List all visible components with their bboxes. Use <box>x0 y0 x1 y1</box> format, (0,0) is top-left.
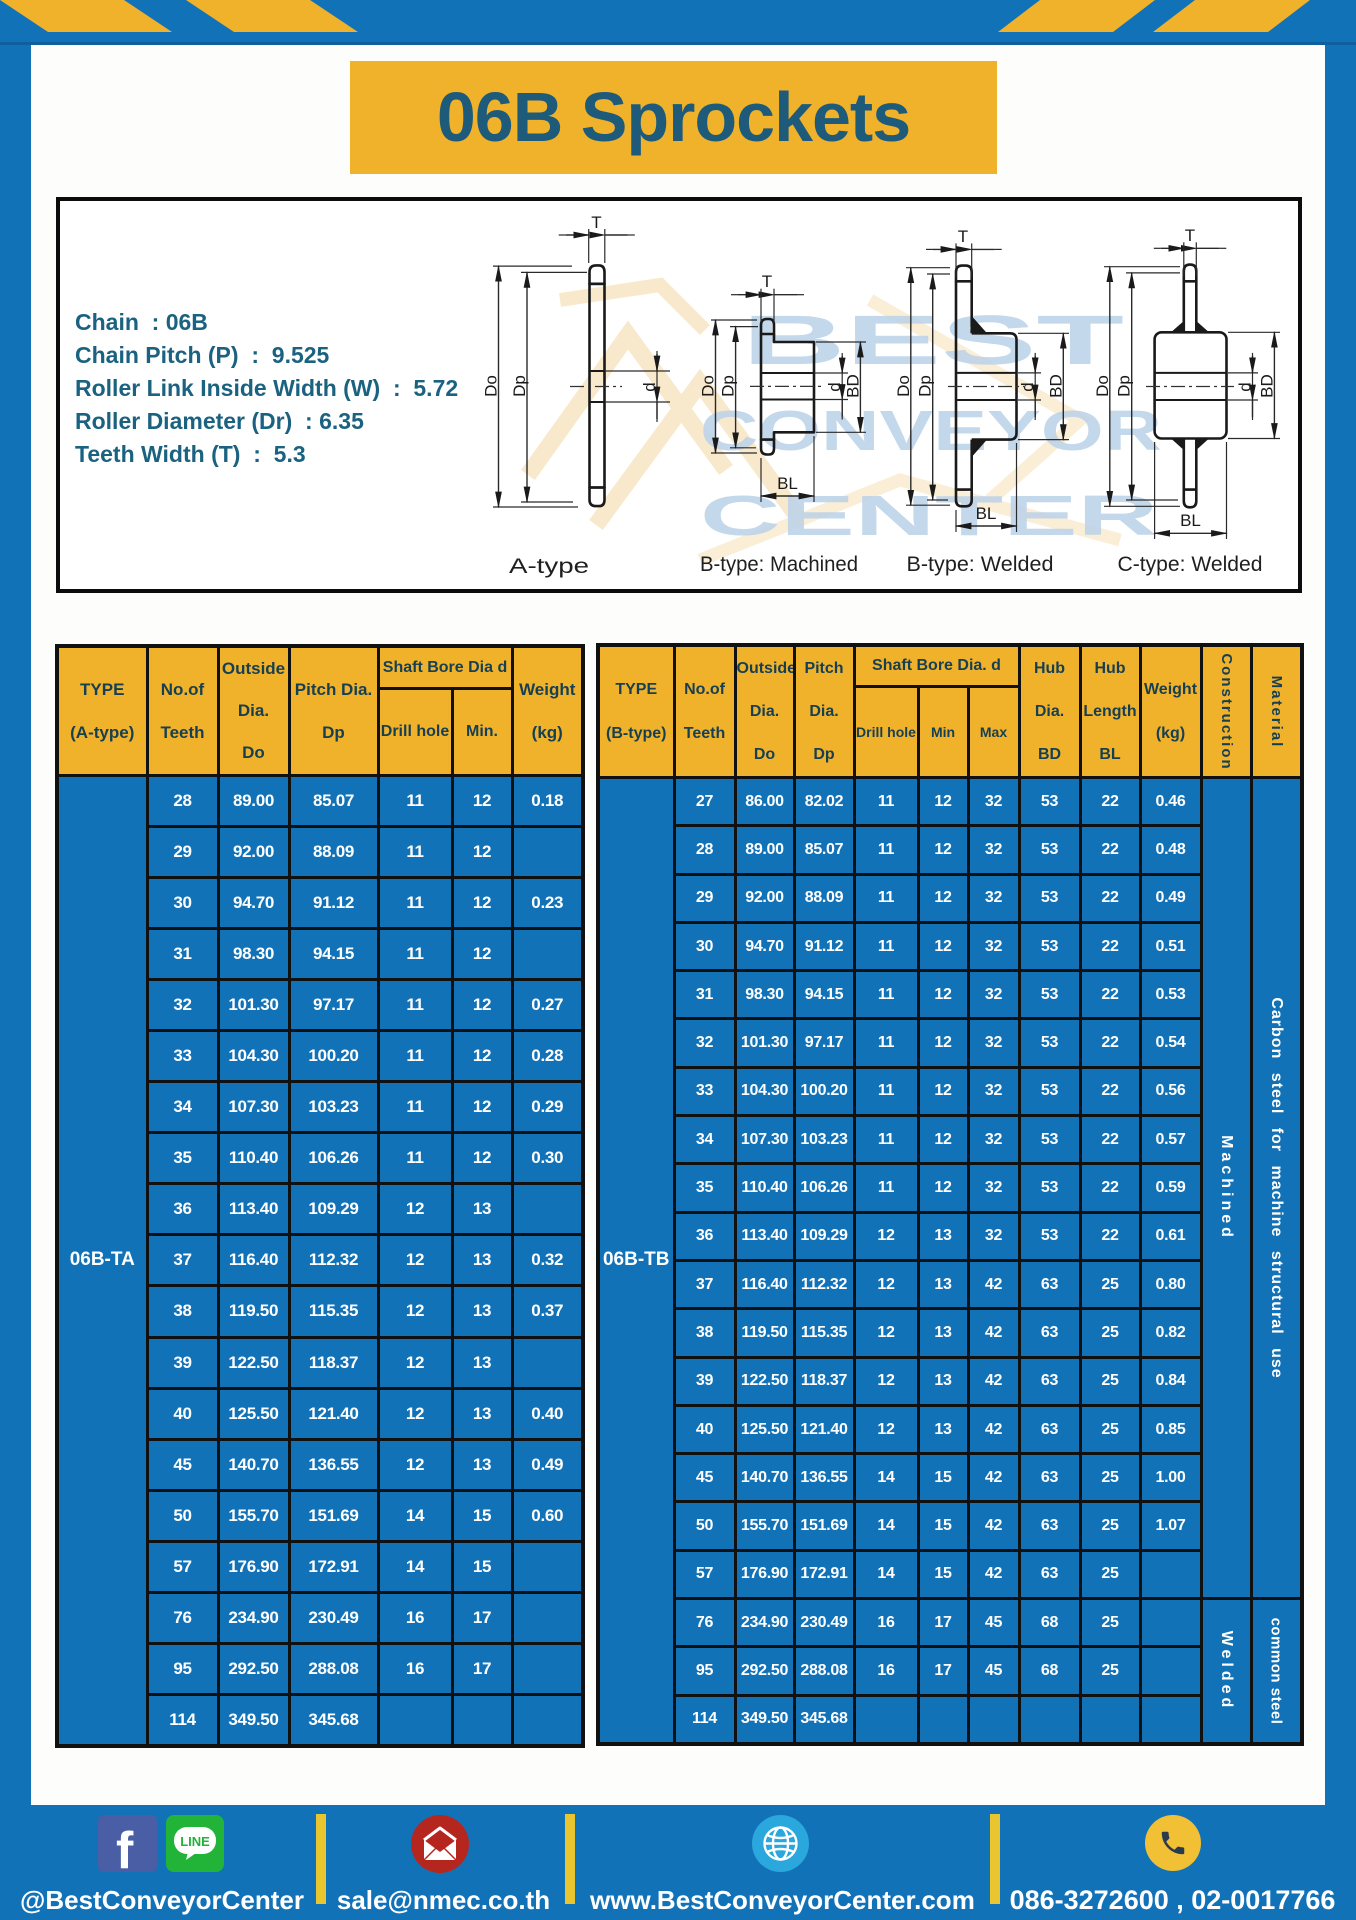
svg-text:Dp: Dp <box>1115 375 1134 397</box>
svg-text:A-type: A-type <box>509 555 589 578</box>
svg-text:BL: BL <box>976 504 997 523</box>
svg-text:BD: BD <box>1046 374 1065 398</box>
svg-text:d: d <box>825 382 844 391</box>
svg-text:T: T <box>1185 226 1195 245</box>
svg-text:d: d <box>1018 382 1037 391</box>
svg-text:Dp: Dp <box>916 375 935 397</box>
svg-text:BL: BL <box>777 474 798 493</box>
svg-text:CENTER: CENTER <box>700 484 1158 548</box>
svg-text:@: @ <box>434 1830 447 1845</box>
svg-text:Do: Do <box>894 375 913 397</box>
svg-text:T: T <box>958 227 968 246</box>
svg-text:B-type: Welded: B-type: Welded <box>907 553 1054 576</box>
svg-text:BL: BL <box>1180 511 1201 530</box>
svg-text:Do: Do <box>1093 375 1112 397</box>
svg-text:T: T <box>591 213 601 232</box>
svg-text:d: d <box>640 382 659 391</box>
svg-text:BD: BD <box>1257 374 1276 398</box>
svg-text:d: d <box>1236 382 1255 391</box>
svg-text:C-type: Welded: C-type: Welded <box>1118 553 1263 576</box>
svg-text:Dp: Dp <box>719 375 738 397</box>
svg-text:Do: Do <box>699 375 718 397</box>
svg-text:B-type: Machined: B-type: Machined <box>700 553 858 576</box>
svg-text:BD: BD <box>843 374 862 398</box>
svg-text:T: T <box>762 272 772 291</box>
svg-text:LINE: LINE <box>180 1834 210 1849</box>
